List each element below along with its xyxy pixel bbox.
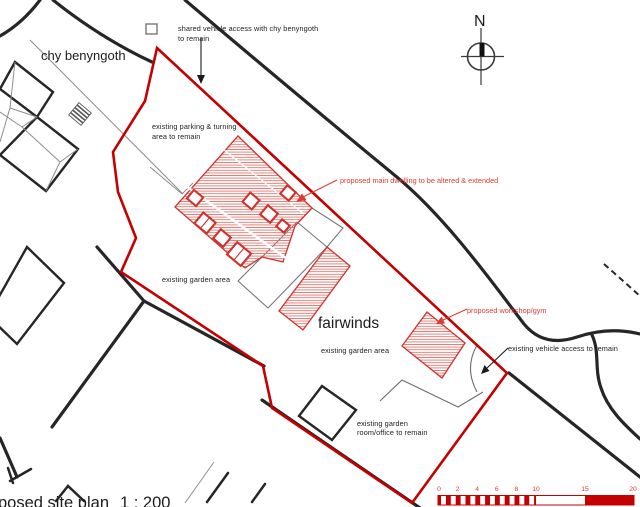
hedge-southwest	[52, 301, 144, 427]
workshop-gym-hatched	[402, 312, 465, 378]
scale-tick-0: 0	[437, 486, 441, 493]
shared-access-label-2: to remain	[178, 34, 209, 43]
site-plan-canvas: N shared vehicle access with chy benyngo…	[0, 0, 640, 507]
workshop-leader	[443, 309, 467, 320]
workshop-label: proposed workshop/gym	[467, 306, 547, 315]
scale-bar-ticks: 0 2 4 6 8 10 15 20	[437, 486, 637, 493]
scale-tick-10: 10	[532, 486, 540, 493]
vehicle-access-label: existing vehicle access to remain	[508, 344, 618, 353]
drawing-title: posed site plan 1 : 200	[0, 494, 170, 507]
parking-label-2: area to remain	[152, 132, 200, 141]
neighbor-buildings	[0, 24, 193, 344]
scale-tick-20: 20	[629, 486, 637, 493]
scale-bar: 0 2 4 6 8 10 15 20	[437, 486, 637, 505]
shared-access-label-1: shared vehicle access with chy benyngoth	[178, 24, 318, 33]
scale-tick-6: 6	[495, 486, 499, 493]
main-dwelling-label: proposed main dwelling to be altered & e…	[340, 176, 498, 185]
vehicle-access-leader	[486, 348, 508, 369]
site-plan-drawing: N shared vehicle access with chy benyngo…	[0, 0, 640, 507]
site-name-label: fairwinds	[318, 315, 379, 332]
access-marker-square	[146, 24, 157, 34]
scale-tick-15: 15	[581, 486, 589, 493]
scale-tick-8: 8	[515, 486, 519, 493]
parking-label-1: existing parking & turning	[152, 122, 237, 131]
cattle-grid-icon	[69, 103, 92, 126]
garden-area-south-label: existing garden area	[321, 346, 390, 355]
neighbor-house-label: chy benyngoth	[41, 48, 126, 63]
road-edge-topleft-a	[0, 0, 40, 36]
dashed-track	[604, 264, 640, 296]
title-text: posed site plan	[0, 494, 109, 507]
shared-access-arrowhead	[197, 75, 205, 84]
garden-room-label-2: room/office to remain	[357, 428, 428, 437]
north-letter: N	[474, 13, 486, 30]
access-drive-edges	[380, 380, 483, 407]
scale-tick-2: 2	[456, 486, 460, 493]
north-compass-icon: N	[461, 13, 504, 85]
gate-swing-arc	[471, 345, 478, 392]
scale-bar-striped	[438, 496, 536, 506]
chy-benyngoth-house	[0, 62, 78, 191]
garden-area-west-label: existing garden area	[162, 275, 231, 284]
house-corner-linework	[150, 167, 193, 194]
garden-room-label-1: existing garden	[357, 419, 408, 428]
lane-edge-southeast	[509, 373, 640, 477]
scale-tick-4: 4	[475, 486, 479, 493]
scale-bar-solid	[585, 496, 634, 506]
building-west-edge	[0, 247, 64, 344]
title-scale-ratio: 1 : 200	[120, 494, 170, 507]
